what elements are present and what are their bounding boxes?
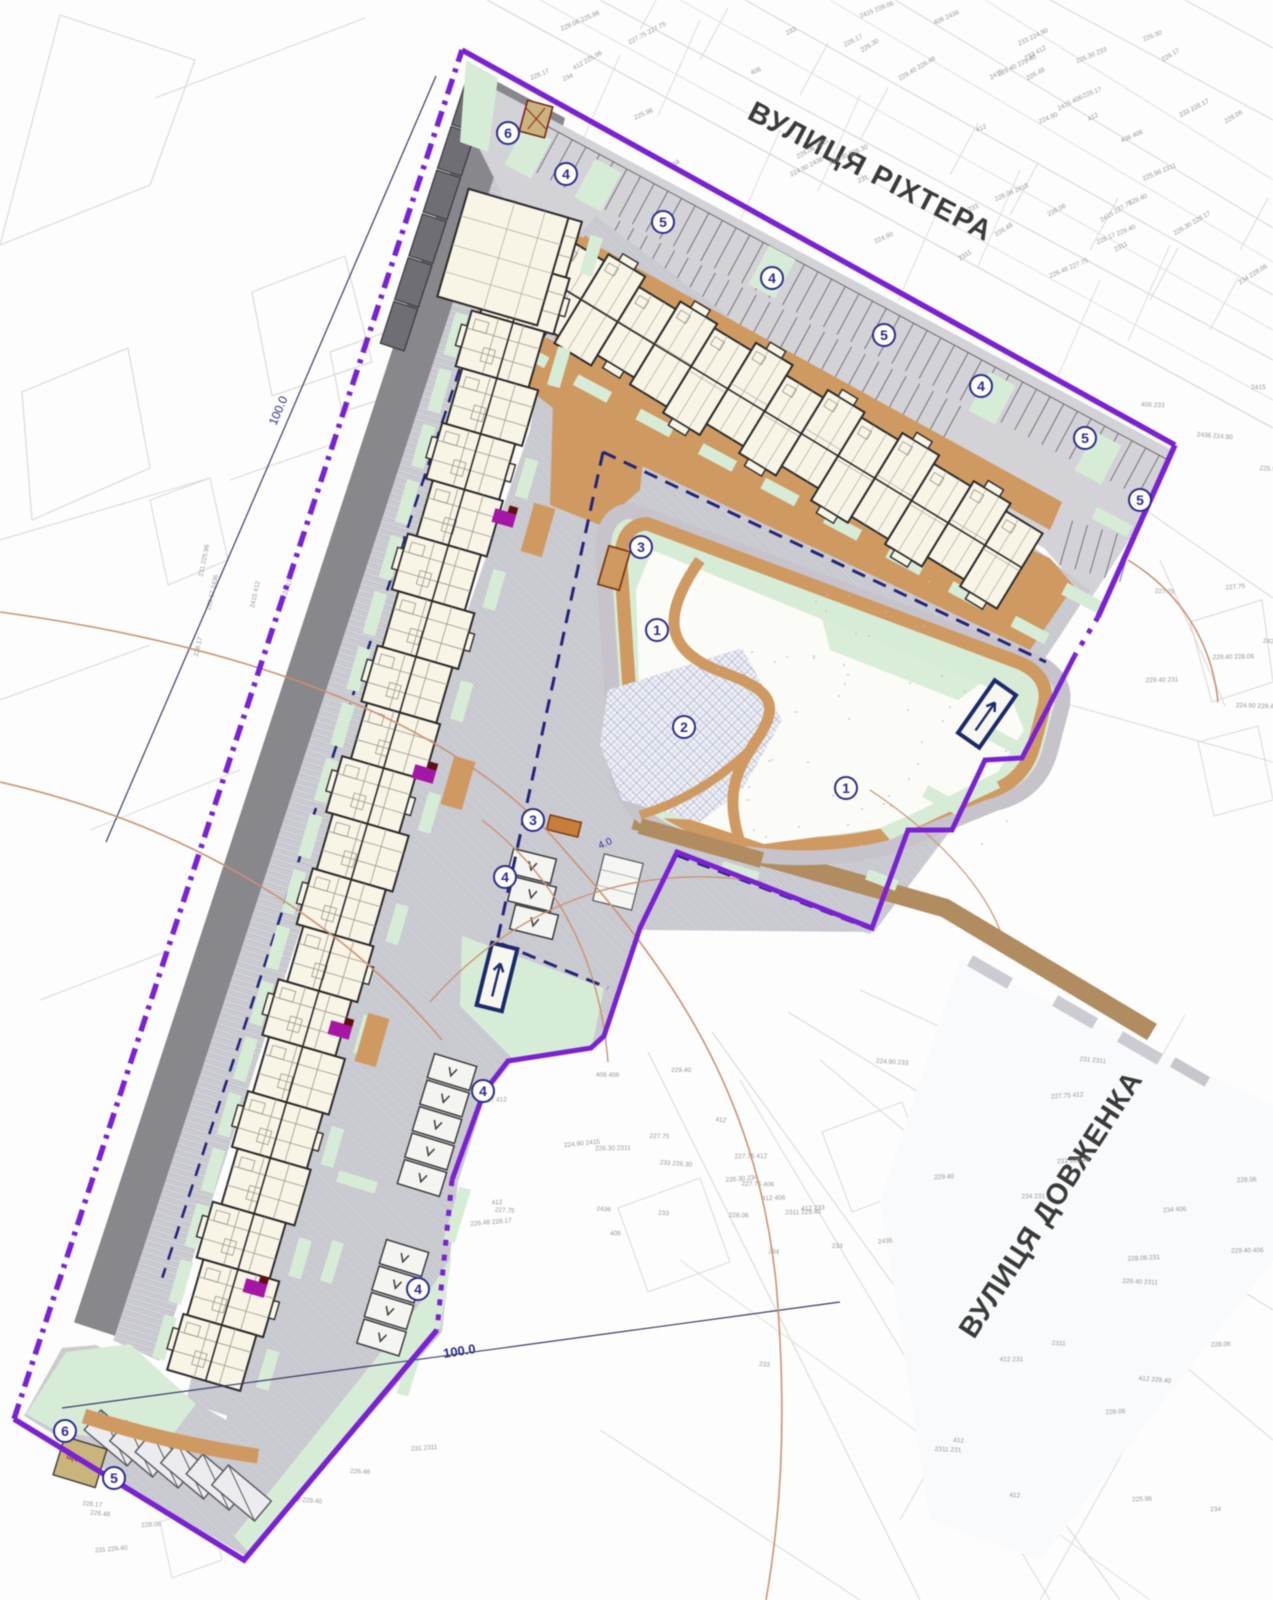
svg-text:4: 4	[562, 166, 570, 182]
svg-text:233: 233	[759, 1361, 771, 1369]
svg-text:228.06: 228.06	[1211, 1341, 1232, 1349]
svg-text:227.75: 227.75	[495, 1207, 516, 1215]
svg-text:229.40 406: 229.40 406	[1231, 1247, 1264, 1254]
svg-text:2311: 2311	[1051, 1340, 1066, 1348]
svg-text:234: 234	[768, 1248, 780, 1256]
svg-text:412: 412	[491, 1199, 503, 1206]
svg-text:228.06: 228.06	[729, 1212, 749, 1219]
svg-text:406 406: 406 406	[596, 1072, 620, 1079]
svg-text:412: 412	[1009, 1492, 1021, 1500]
svg-text:2: 2	[680, 719, 688, 735]
svg-text:6: 6	[61, 1423, 69, 1439]
svg-text:5: 5	[880, 327, 888, 343]
svg-text:225.96: 225.96	[1259, 465, 1273, 473]
svg-text:2436: 2436	[1263, 638, 1273, 646]
svg-text:234: 234	[1210, 1506, 1221, 1513]
svg-text:3: 3	[529, 812, 537, 828]
svg-text:3: 3	[637, 539, 645, 555]
svg-text:226.30 2311: 226.30 2311	[595, 1145, 631, 1153]
svg-text:1: 1	[653, 622, 661, 638]
svg-text:5: 5	[110, 1470, 118, 1486]
svg-text:229.40 231: 229.40 231	[1146, 677, 1179, 685]
svg-text:228.06: 228.06	[1105, 1408, 1126, 1416]
svg-text:228.06: 228.06	[141, 1521, 162, 1529]
svg-text:6: 6	[504, 125, 512, 141]
svg-text:412 233: 412 233	[801, 1204, 825, 1212]
svg-text:5: 5	[1136, 492, 1144, 508]
svg-text:412: 412	[953, 1437, 965, 1445]
svg-text:225.96: 225.96	[1132, 1496, 1153, 1504]
svg-text:229.40 228.06: 229.40 228.06	[1212, 653, 1254, 661]
svg-text:1: 1	[842, 780, 850, 796]
svg-text:228.06: 228.06	[1237, 1176, 1257, 1184]
svg-text:4: 4	[414, 1281, 422, 1297]
svg-text:233: 233	[832, 1243, 843, 1250]
svg-text:412 231: 412 231	[1000, 1356, 1024, 1363]
svg-text:2311 231: 2311 231	[935, 1446, 962, 1454]
svg-text:412: 412	[715, 1116, 727, 1124]
svg-text:227.75: 227.75	[649, 1133, 669, 1141]
svg-text:4: 4	[479, 1083, 487, 1099]
svg-text:412 406: 412 406	[762, 1195, 786, 1203]
svg-text:4: 4	[501, 869, 509, 885]
svg-text:2415: 2415	[1251, 384, 1266, 391]
svg-text:5: 5	[1081, 430, 1089, 446]
svg-text:234 231: 234 231	[1022, 1193, 1046, 1200]
svg-text:233: 233	[658, 1210, 670, 1218]
svg-text:406: 406	[610, 1230, 622, 1238]
svg-text:5: 5	[659, 214, 667, 230]
svg-text:4: 4	[977, 378, 985, 394]
svg-text:406 233: 406 233	[1141, 401, 1165, 409]
svg-text:226.48: 226.48	[350, 1468, 371, 1476]
svg-text:229.40: 229.40	[671, 1067, 691, 1074]
svg-text:4: 4	[768, 270, 776, 286]
svg-text:224.90 229.40: 224.90 229.40	[1236, 702, 1273, 710]
svg-text:229.40: 229.40	[934, 1173, 955, 1181]
svg-text:2436: 2436	[596, 1206, 611, 1214]
